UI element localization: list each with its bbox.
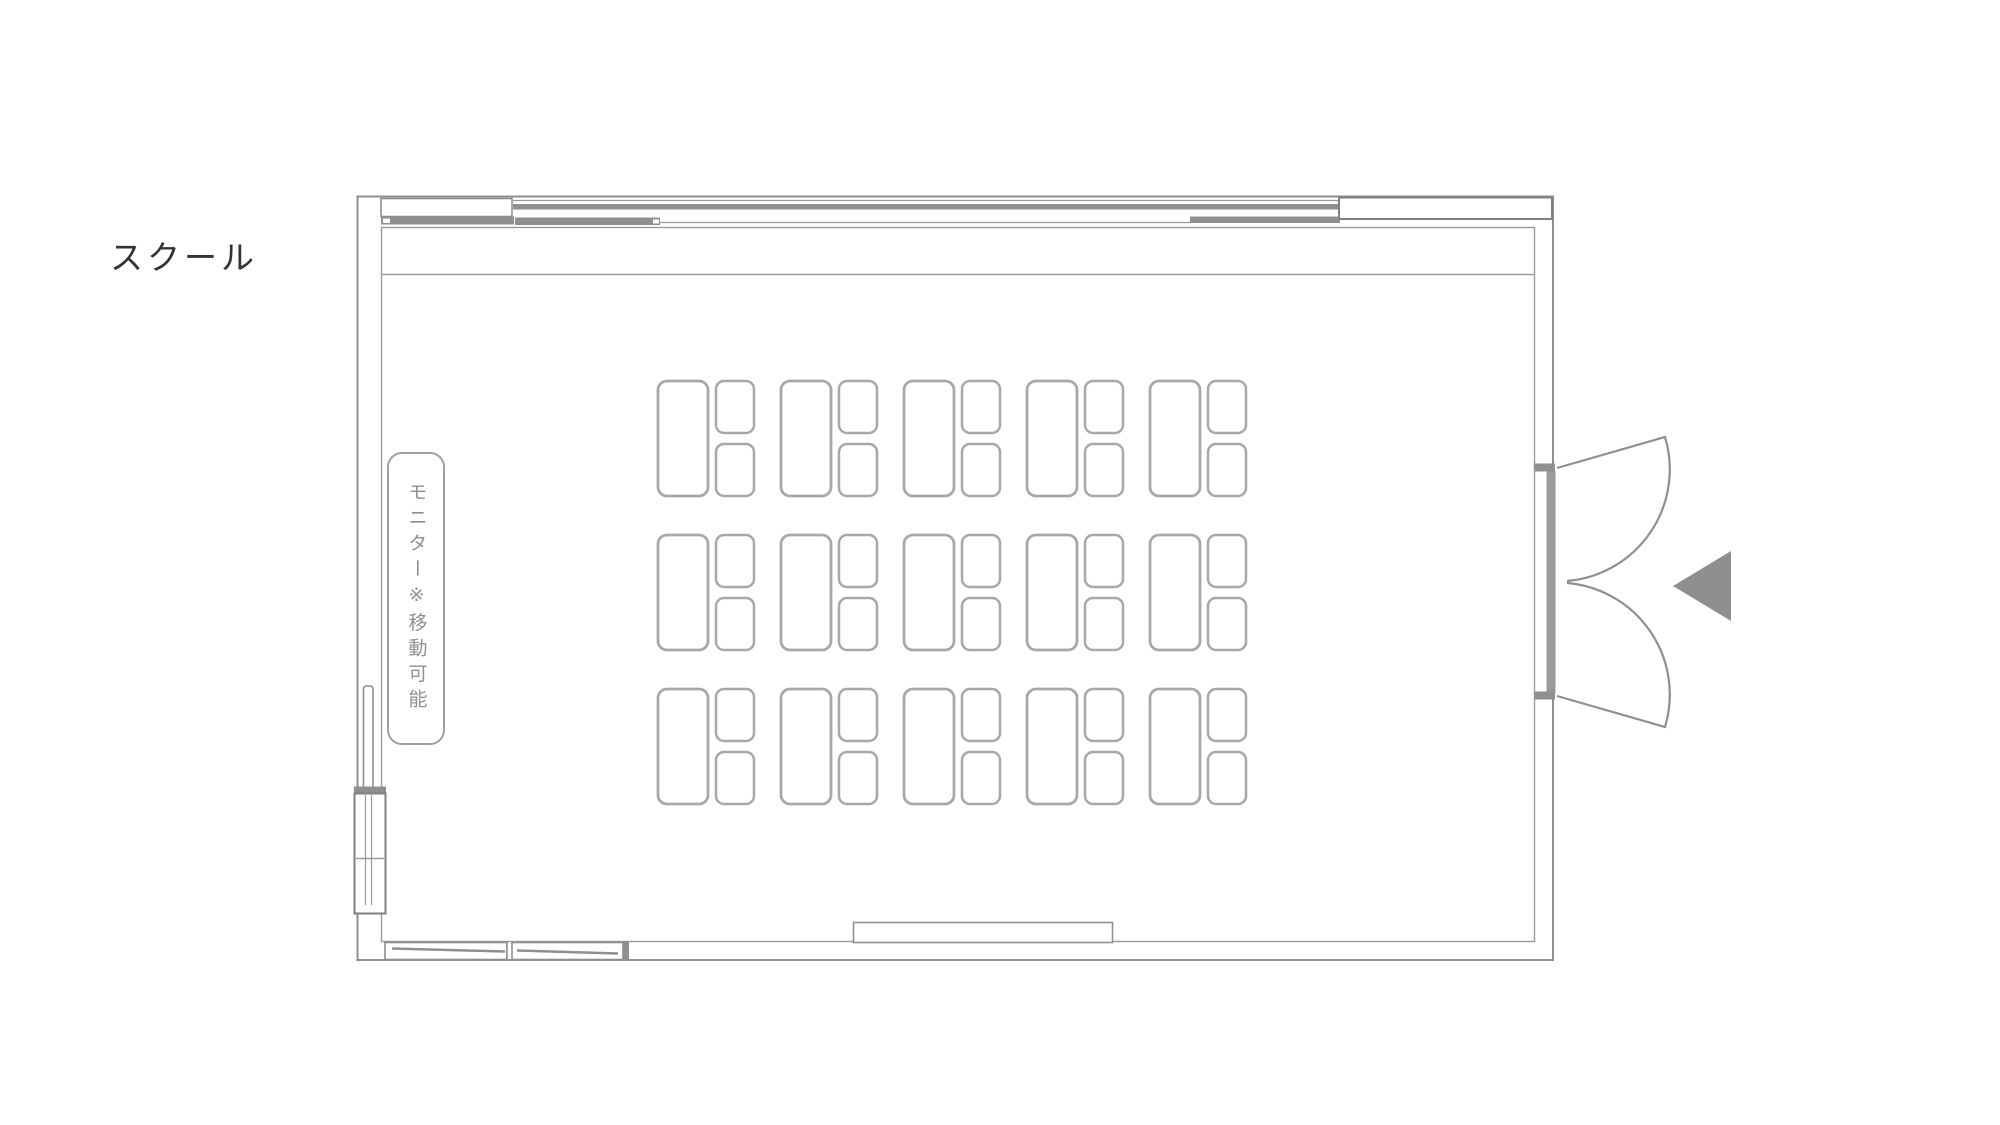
entrance-door xyxy=(1535,437,1731,727)
desk xyxy=(1027,381,1077,496)
monitor-box: モニター※移動可能 xyxy=(387,452,445,745)
chair xyxy=(1085,381,1123,433)
chair xyxy=(716,689,754,741)
chair xyxy=(962,444,1000,496)
entrance-arrow-icon xyxy=(1673,551,1731,621)
window-top-c xyxy=(1339,198,1552,220)
desk xyxy=(904,381,954,496)
chair xyxy=(839,598,877,650)
chair xyxy=(1085,535,1123,587)
chair xyxy=(839,381,877,433)
chair xyxy=(1208,535,1246,587)
chair xyxy=(839,689,877,741)
chair xyxy=(1085,598,1123,650)
sill-notch xyxy=(653,220,659,224)
sill-notch xyxy=(383,219,390,224)
door-jamb-top xyxy=(1535,464,1555,472)
chair xyxy=(1208,598,1246,650)
chair xyxy=(716,535,754,587)
door-closed-panels xyxy=(1547,471,1556,693)
door-leaf-lower xyxy=(1557,583,1670,727)
window-bottom-end-post xyxy=(623,941,629,961)
desk xyxy=(904,689,954,804)
window-top-a xyxy=(381,199,512,217)
desk xyxy=(1027,535,1077,650)
desk xyxy=(781,381,831,496)
desk xyxy=(781,689,831,804)
chair xyxy=(962,598,1000,650)
window-top-b-bar xyxy=(513,204,1340,210)
door-leaf-upper xyxy=(1557,437,1670,581)
window-left-frame xyxy=(355,794,386,914)
chair xyxy=(716,752,754,804)
desk xyxy=(781,535,831,650)
chair xyxy=(1208,689,1246,741)
desk xyxy=(658,535,708,650)
desk xyxy=(1150,689,1200,804)
bottom-cabinet xyxy=(854,923,1113,943)
window-left-bar xyxy=(354,787,386,794)
chair xyxy=(1085,689,1123,741)
seating-grid xyxy=(658,381,1246,804)
chair xyxy=(1085,444,1123,496)
desk xyxy=(658,381,708,496)
chair xyxy=(962,535,1000,587)
chair xyxy=(1208,752,1246,804)
inner-wall xyxy=(382,228,1535,942)
floor-plan-canvas: スクール xyxy=(0,0,2000,1125)
chair xyxy=(1208,381,1246,433)
desk xyxy=(658,689,708,804)
chair xyxy=(962,689,1000,741)
window-left-upper-pane xyxy=(364,686,374,793)
desk xyxy=(904,535,954,650)
window-top-c-sill xyxy=(1190,217,1340,224)
chair xyxy=(1085,752,1123,804)
chair xyxy=(716,598,754,650)
desk xyxy=(1027,689,1077,804)
desk xyxy=(1150,381,1200,496)
window-top-a-sill xyxy=(381,217,514,225)
chair xyxy=(962,752,1000,804)
chair xyxy=(716,381,754,433)
chair xyxy=(839,444,877,496)
chair xyxy=(839,535,877,587)
monitor-label: モニター※移動可能 xyxy=(407,482,426,715)
top-wall-windows xyxy=(381,198,1552,226)
desk xyxy=(1150,535,1200,650)
chair xyxy=(962,381,1000,433)
door-jamb-bottom xyxy=(1535,692,1555,700)
window-top-b-sill xyxy=(515,218,660,226)
floor-plan-drawing xyxy=(0,0,2000,1125)
chair xyxy=(716,444,754,496)
chair xyxy=(1208,444,1246,496)
chair xyxy=(839,752,877,804)
